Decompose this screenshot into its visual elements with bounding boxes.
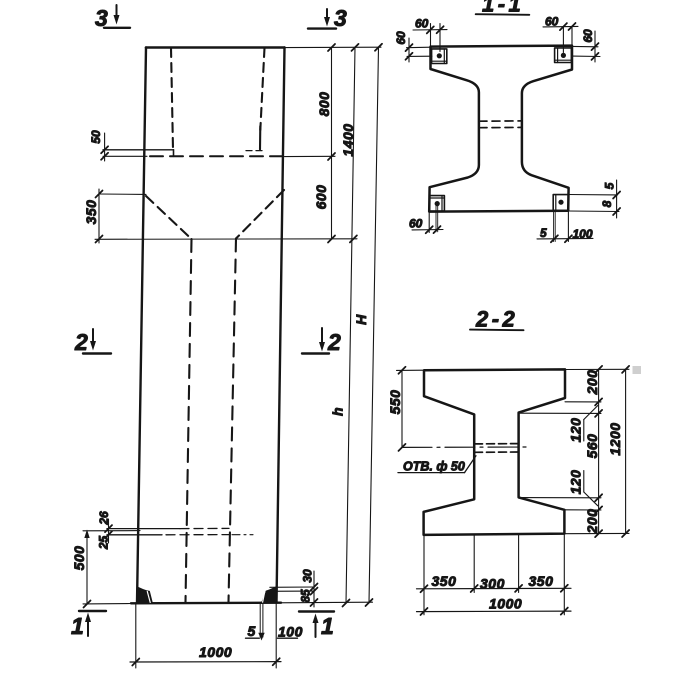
- svg-text:30: 30: [301, 569, 315, 583]
- svg-text:800: 800: [316, 92, 332, 117]
- svg-text:350: 350: [83, 200, 99, 225]
- svg-text:100: 100: [278, 624, 303, 640]
- svg-text:60: 60: [415, 17, 429, 31]
- svg-text:1000: 1000: [199, 644, 232, 660]
- svg-text:600: 600: [313, 185, 329, 210]
- svg-text:60: 60: [394, 31, 408, 45]
- svg-text:60: 60: [409, 217, 423, 231]
- svg-text:h: h: [330, 407, 346, 416]
- svg-text:5: 5: [248, 623, 256, 639]
- svg-text:60: 60: [581, 29, 595, 43]
- svg-text:100: 100: [573, 227, 593, 241]
- svg-text:2: 2: [327, 329, 341, 355]
- svg-text:8: 8: [600, 200, 614, 207]
- svg-text:85: 85: [299, 589, 313, 603]
- svg-text:300: 300: [480, 576, 505, 592]
- svg-text:ОТВ. ф 50: ОТВ. ф 50: [403, 460, 465, 474]
- svg-text:3: 3: [334, 5, 347, 31]
- svg-text:200: 200: [584, 509, 600, 535]
- svg-text:26: 26: [97, 511, 111, 526]
- svg-text:560: 560: [584, 434, 600, 459]
- svg-text:1: 1: [71, 613, 84, 639]
- svg-text:3: 3: [95, 5, 108, 31]
- svg-text:25: 25: [97, 536, 111, 551]
- svg-text:500: 500: [71, 546, 87, 571]
- svg-text:1200: 1200: [607, 422, 623, 455]
- svg-text:50: 50: [89, 130, 103, 144]
- svg-text:5: 5: [603, 182, 617, 189]
- svg-text:200: 200: [584, 370, 600, 396]
- svg-text:120: 120: [568, 470, 584, 495]
- svg-text:1: 1: [321, 613, 334, 639]
- svg-text:350: 350: [529, 573, 554, 589]
- svg-text:1400: 1400: [340, 123, 356, 156]
- svg-text:350: 350: [432, 573, 457, 589]
- svg-text:2-2: 2-2: [475, 307, 518, 332]
- svg-text:2: 2: [74, 329, 88, 355]
- svg-text:120: 120: [568, 418, 584, 443]
- svg-text:5: 5: [540, 226, 547, 240]
- svg-text:60: 60: [545, 15, 559, 29]
- svg-text:550: 550: [387, 390, 403, 415]
- svg-text:H: H: [353, 314, 369, 325]
- svg-text:1000: 1000: [489, 596, 522, 612]
